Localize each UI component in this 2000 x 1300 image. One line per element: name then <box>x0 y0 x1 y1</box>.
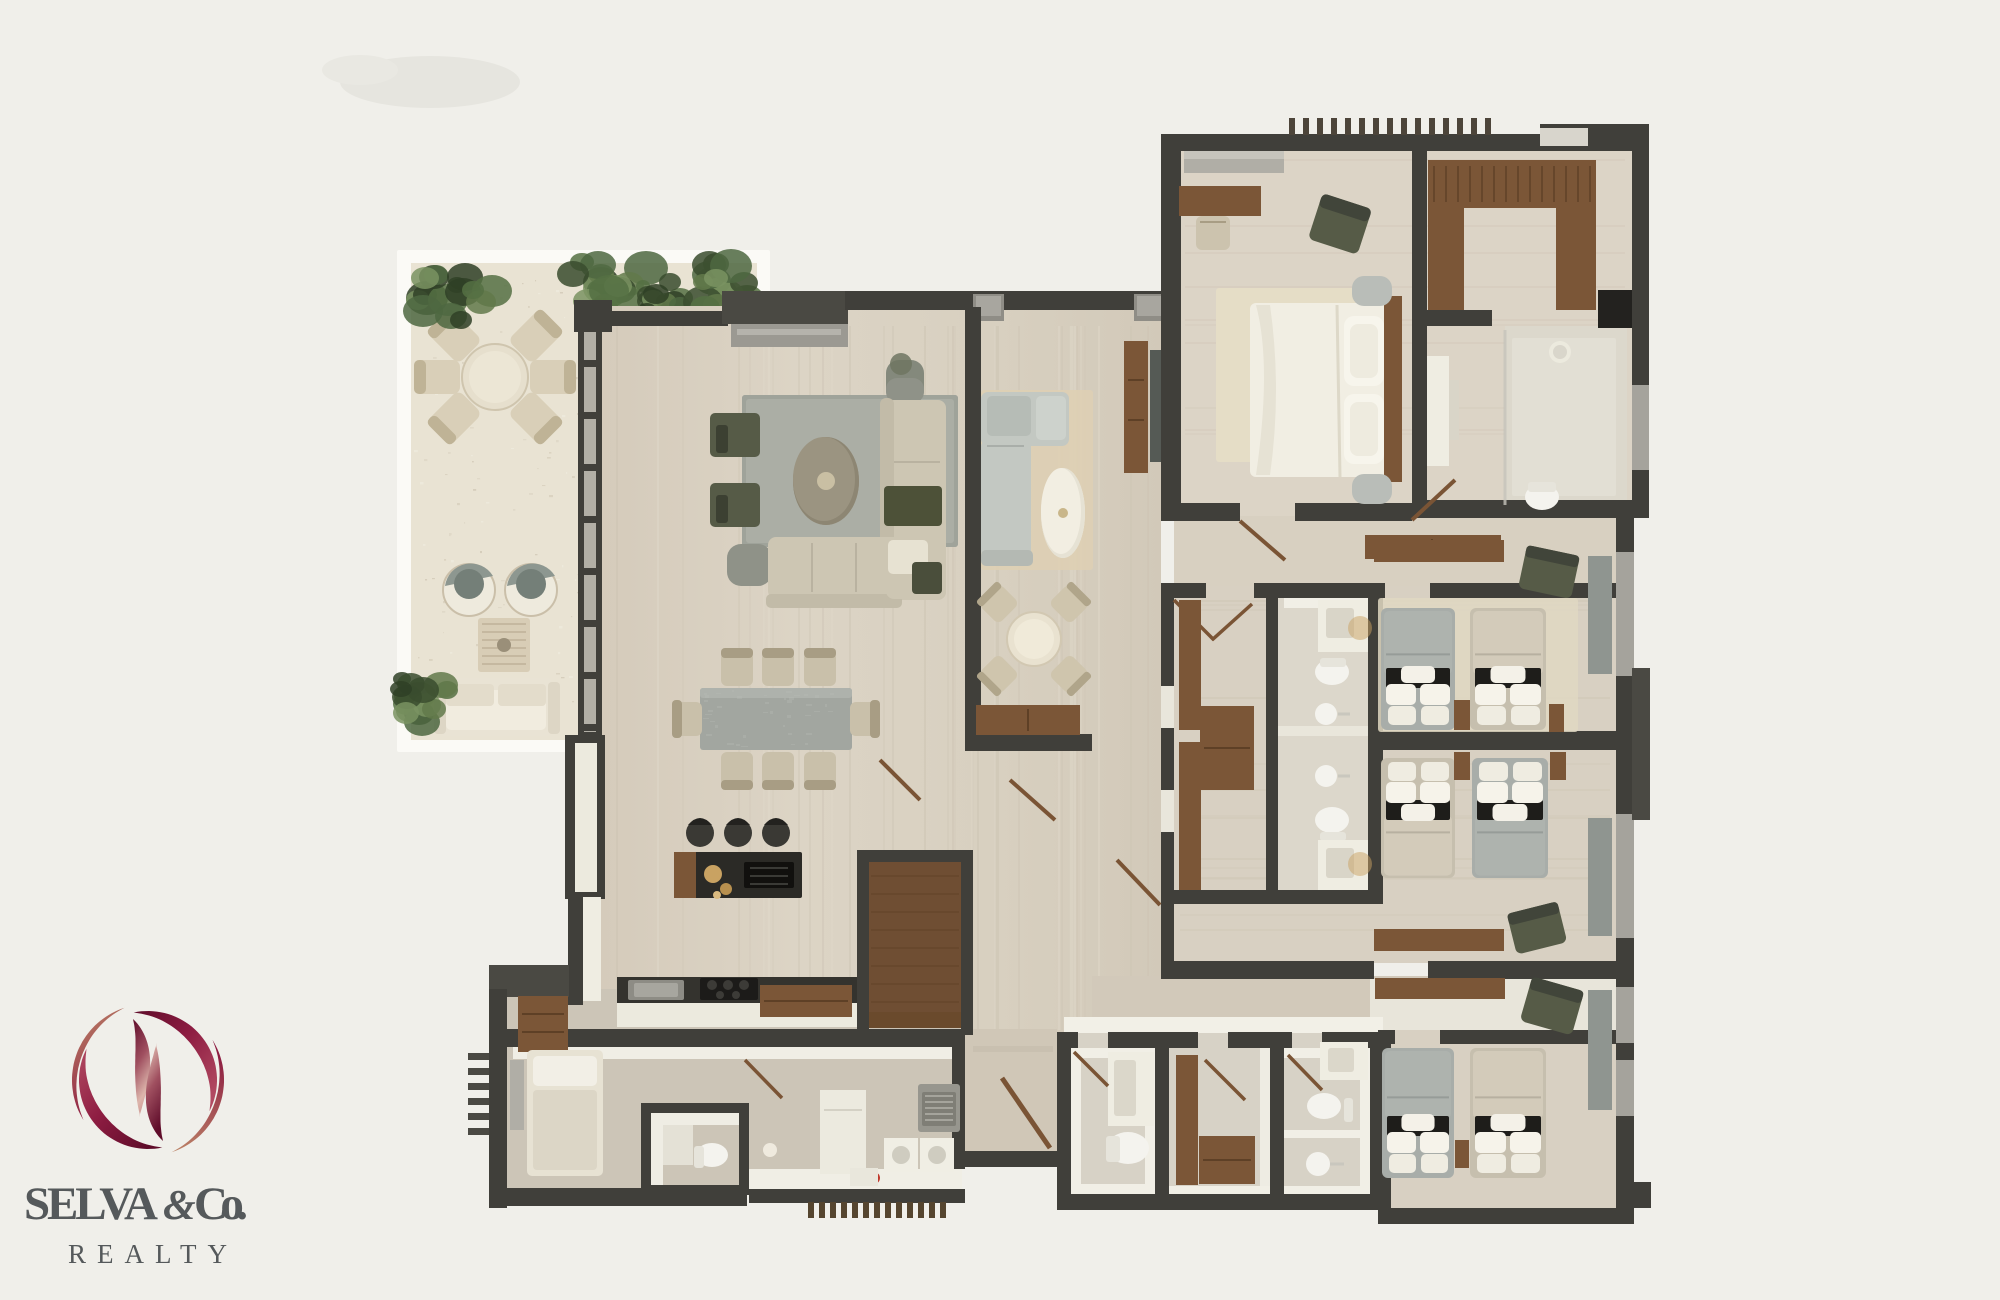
svg-text:Co.: Co. <box>194 1178 248 1230</box>
svg-text:SELVA: SELVA <box>24 1178 158 1230</box>
svg-text:REALTY: REALTY <box>68 1239 238 1269</box>
svg-text:&: & <box>163 1183 196 1229</box>
